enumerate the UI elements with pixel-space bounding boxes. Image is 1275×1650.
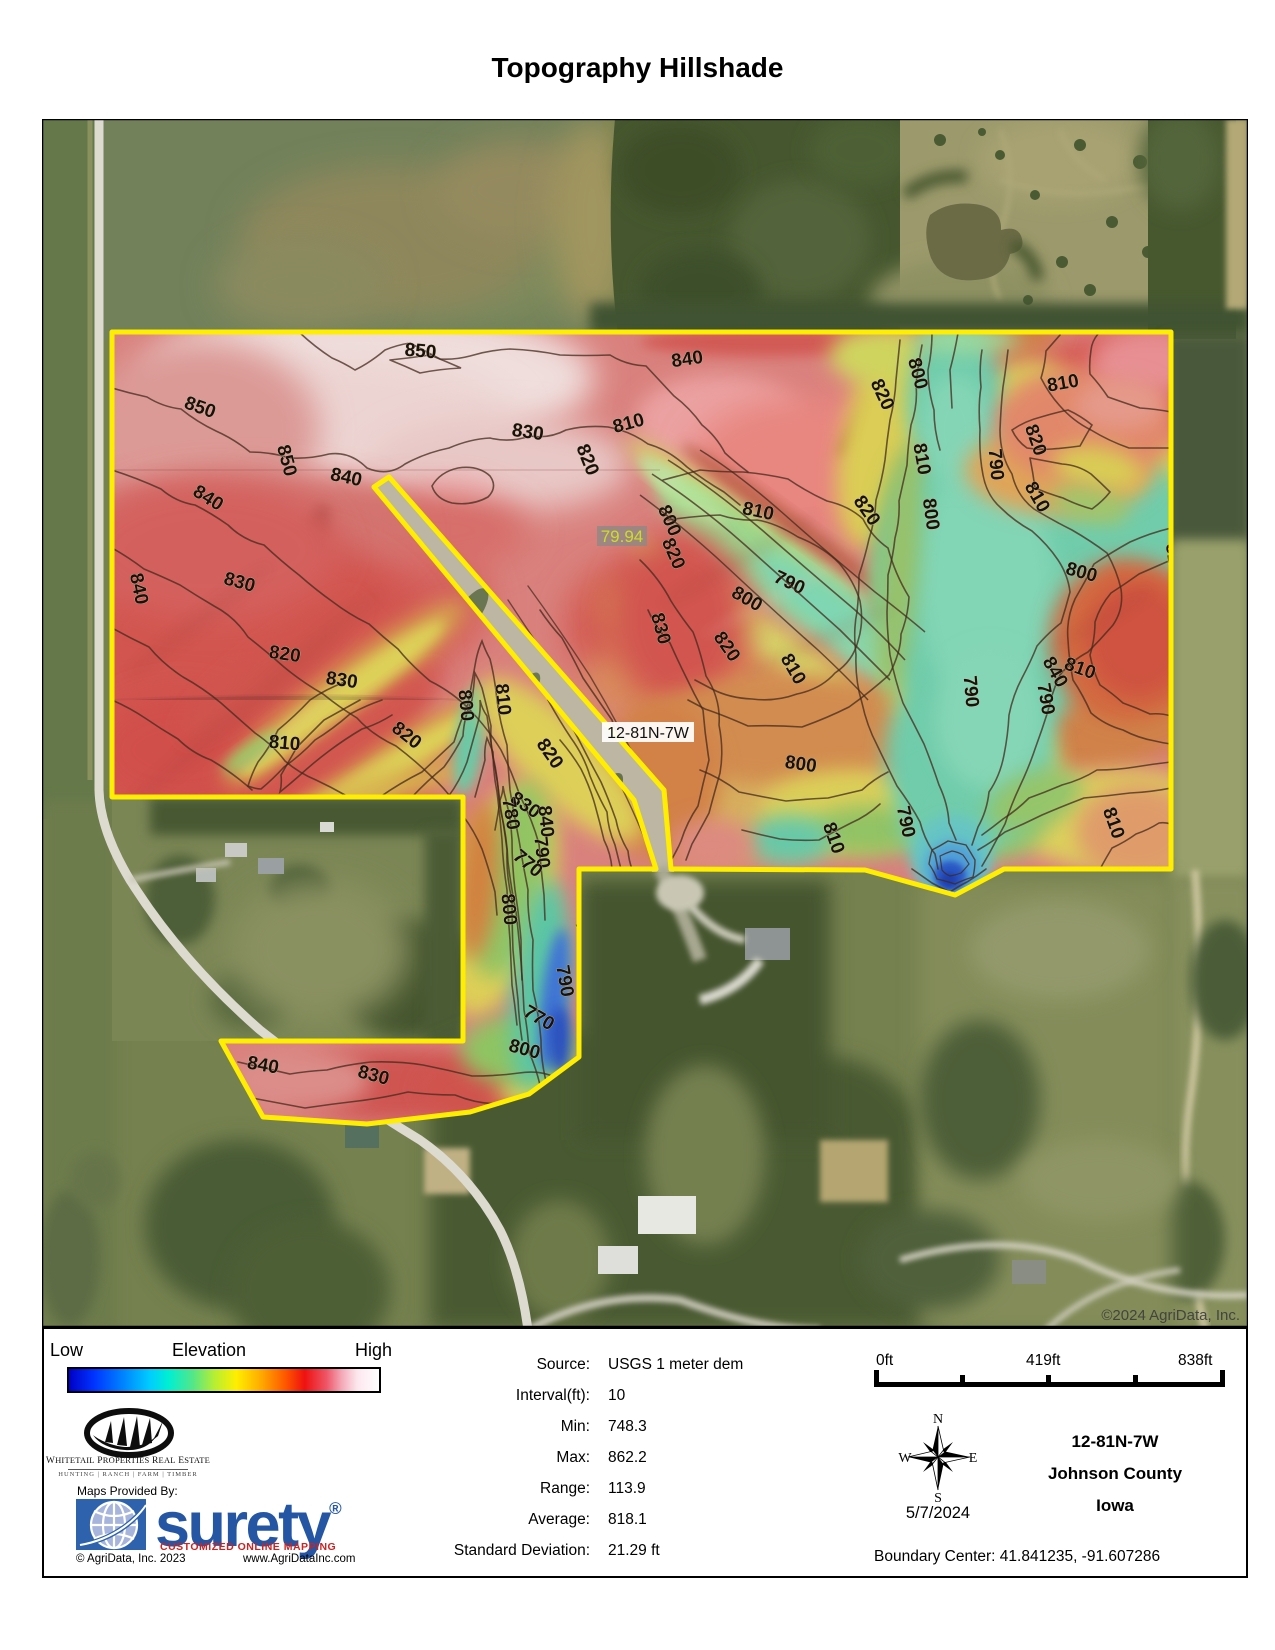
svg-text:800: 800: [784, 752, 818, 777]
svg-text:790: 790: [959, 675, 983, 708]
svg-text:79.94: 79.94: [601, 527, 644, 546]
svg-text:810: 810: [268, 732, 301, 756]
svg-text:800: 800: [496, 893, 520, 927]
svg-text:810: 810: [490, 683, 514, 717]
svg-text:790: 790: [984, 448, 1008, 481]
svg-text:830: 830: [325, 668, 359, 693]
svg-text:840: 840: [670, 347, 704, 372]
svg-text:840: 840: [533, 805, 557, 839]
svg-text:850: 850: [404, 340, 437, 364]
svg-text:S: S: [934, 1491, 942, 1504]
svg-text:N: N: [933, 1412, 943, 1427]
svg-text:W: W: [898, 1451, 912, 1466]
svg-text:800: 800: [918, 497, 943, 531]
svg-text:E: E: [969, 1451, 978, 1466]
svg-text:12-81N-7W: 12-81N-7W: [607, 725, 690, 742]
svg-text:830: 830: [511, 420, 545, 445]
svg-text:©2024 AgriData, Inc.: ©2024 AgriData, Inc.: [1101, 1307, 1240, 1324]
svg-text:820: 820: [268, 642, 302, 667]
svg-text:800: 800: [453, 689, 477, 723]
